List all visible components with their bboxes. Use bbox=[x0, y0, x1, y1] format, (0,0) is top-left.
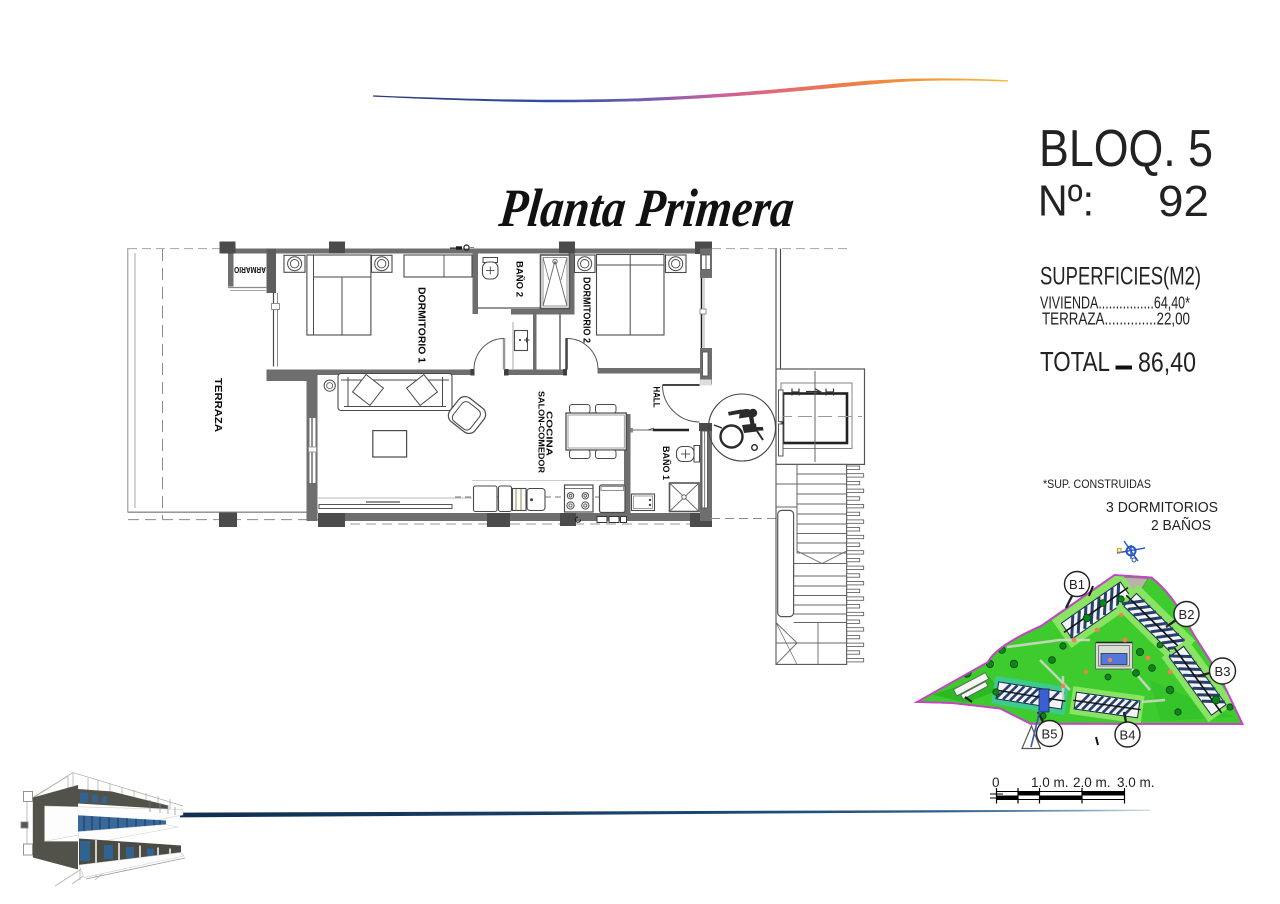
svg-text:TERRAZA..............22,00: TERRAZA..............22,00 bbox=[1042, 309, 1190, 329]
svg-text:B1: B1 bbox=[1069, 577, 1085, 592]
svg-text:*SUP. CONSTRUIDAS: *SUP. CONSTRUIDAS bbox=[1043, 479, 1151, 491]
svg-text:3.0 m.: 3.0 m. bbox=[1117, 775, 1155, 790]
svg-text:1.0 m.: 1.0 m. bbox=[1031, 775, 1069, 790]
svg-text:B2: B2 bbox=[1179, 607, 1195, 622]
svg-text:B5: B5 bbox=[1042, 727, 1058, 742]
svg-text:BAÑO 1: BAÑO 1 bbox=[660, 446, 671, 481]
svg-text:COCINA: COCINA bbox=[545, 411, 555, 456]
svg-text:92: 92 bbox=[1158, 177, 1209, 226]
svg-text:3 DORMITORIOS: 3 DORMITORIOS bbox=[1106, 499, 1218, 516]
svg-text:B4: B4 bbox=[1120, 728, 1136, 743]
svg-text:TERRAZA: TERRAZA bbox=[212, 378, 223, 432]
svg-text:2.0 m.: 2.0 m. bbox=[1073, 775, 1111, 790]
svg-text:DORMITORIO 1: DORMITORIO 1 bbox=[415, 287, 427, 363]
svg-text:BLOQ. 5: BLOQ. 5 bbox=[1039, 120, 1213, 178]
svg-text:TOTAL: TOTAL bbox=[1040, 346, 1110, 377]
svg-text:DORMITORIO 2: DORMITORIO 2 bbox=[580, 277, 592, 343]
svg-text:ARMARIO: ARMARIO bbox=[234, 265, 266, 274]
svg-text:HALL: HALL bbox=[651, 387, 662, 408]
svg-text:0: 0 bbox=[992, 775, 1000, 790]
svg-text:Planta Primera: Planta Primera bbox=[496, 178, 797, 238]
svg-text:Nº:: Nº: bbox=[1038, 177, 1094, 226]
svg-text:BAÑO 2: BAÑO 2 bbox=[514, 261, 525, 297]
svg-text:B3: B3 bbox=[1215, 664, 1231, 679]
svg-text:2 BAÑOS: 2 BAÑOS bbox=[1151, 517, 1211, 534]
svg-text:SUPERFICIES(M2): SUPERFICIES(M2) bbox=[1040, 263, 1201, 291]
svg-text:86,40: 86,40 bbox=[1138, 347, 1196, 378]
